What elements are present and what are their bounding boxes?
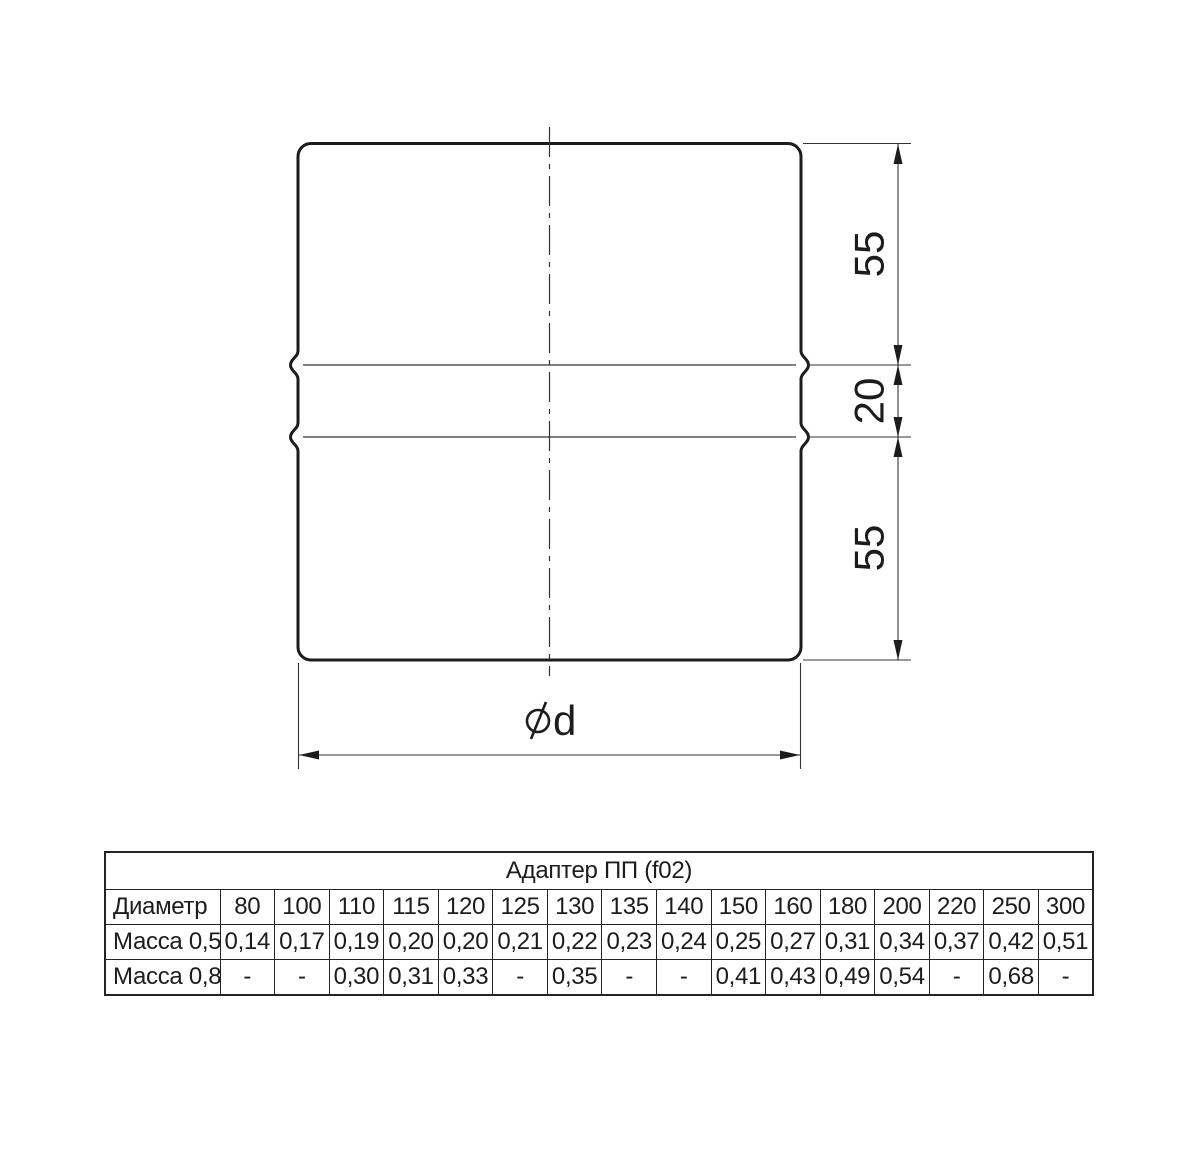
- table-cell: 220: [929, 890, 984, 925]
- table-cell: 130: [547, 890, 602, 925]
- table-row: Масса 0,50,140,170,190,200,200,210,220,2…: [105, 925, 1093, 960]
- table-cell: 0,42: [984, 925, 1039, 960]
- dim-label-bottom: 55: [846, 525, 893, 572]
- spec-table: Адаптер ПП (f02) Диаметр8010011011512012…: [104, 851, 1094, 996]
- table-cell: 0,31: [820, 925, 875, 960]
- table-cell: 180: [820, 890, 875, 925]
- table-cell: 0,17: [275, 925, 330, 960]
- table-cell: -: [657, 960, 712, 996]
- dim-label-middle: 20: [846, 378, 893, 425]
- table-cell: 115: [384, 890, 439, 925]
- table-cell: 200: [875, 890, 930, 925]
- table-cell: 150: [711, 890, 766, 925]
- table-title-row: Адаптер ПП (f02): [105, 852, 1093, 890]
- table-cell: 0,31: [384, 960, 439, 996]
- adapter-drawing: 55 20 55 d: [0, 0, 1200, 820]
- spec-table-container: Адаптер ПП (f02) Диаметр8010011011512012…: [104, 851, 1094, 996]
- table-cell: 0,54: [875, 960, 930, 996]
- technical-drawing-page: 55 20 55 d Адаптер П: [0, 0, 1200, 1150]
- table-row: Диаметр801001101151201251301351401501601…: [105, 890, 1093, 925]
- table-cell: 125: [493, 890, 548, 925]
- dim-label-top: 55: [846, 231, 893, 278]
- table-cell: 300: [1038, 890, 1093, 925]
- table-cell: 0,20: [438, 925, 493, 960]
- table-cell: 0,51: [1038, 925, 1093, 960]
- table-cell: 0,22: [547, 925, 602, 960]
- table-cell: -: [493, 960, 548, 996]
- table-cell: -: [929, 960, 984, 996]
- diameter-symbol: [527, 702, 549, 739]
- table-cell: 0,43: [766, 960, 821, 996]
- table-cell: 120: [438, 890, 493, 925]
- table-cell: 0,34: [875, 925, 930, 960]
- row-header: Масса 0,8: [105, 960, 220, 996]
- table-cell: 0,14: [220, 925, 275, 960]
- table-cell: 0,20: [384, 925, 439, 960]
- table-cell: 135: [602, 890, 657, 925]
- table-cell: 80: [220, 890, 275, 925]
- dim-label-diameter: d: [553, 697, 576, 744]
- table-cell: 0,37: [929, 925, 984, 960]
- bottom-extension-lines: [299, 663, 801, 769]
- table-cell: 160: [766, 890, 821, 925]
- table-cell: 0,30: [329, 960, 384, 996]
- table-cell: 0,23: [602, 925, 657, 960]
- table-cell: 100: [275, 890, 330, 925]
- table-cell: 0,27: [766, 925, 821, 960]
- table-cell: 0,19: [329, 925, 384, 960]
- row-header: Диаметр: [105, 890, 220, 925]
- row-header: Масса 0,5: [105, 925, 220, 960]
- table-cell: 140: [657, 890, 712, 925]
- table-title: Адаптер ПП (f02): [105, 852, 1093, 890]
- table-cell: 0,68: [984, 960, 1039, 996]
- table-cell: 0,25: [711, 925, 766, 960]
- table-cell: 250: [984, 890, 1039, 925]
- table-cell: -: [275, 960, 330, 996]
- table-cell: -: [602, 960, 657, 996]
- table-cell: 0,35: [547, 960, 602, 996]
- spec-table-body: Адаптер ПП (f02) Диаметр8010011011512012…: [105, 852, 1093, 995]
- table-row: Масса 0,8--0,300,310,33-0,35--0,410,430,…: [105, 960, 1093, 996]
- table-cell: 0,33: [438, 960, 493, 996]
- table-cell: -: [220, 960, 275, 996]
- table-cell: 0,41: [711, 960, 766, 996]
- table-cell: -: [1038, 960, 1093, 996]
- table-cell: 110: [329, 890, 384, 925]
- table-cell: 0,21: [493, 925, 548, 960]
- table-cell: 0,49: [820, 960, 875, 996]
- table-cell: 0,24: [657, 925, 712, 960]
